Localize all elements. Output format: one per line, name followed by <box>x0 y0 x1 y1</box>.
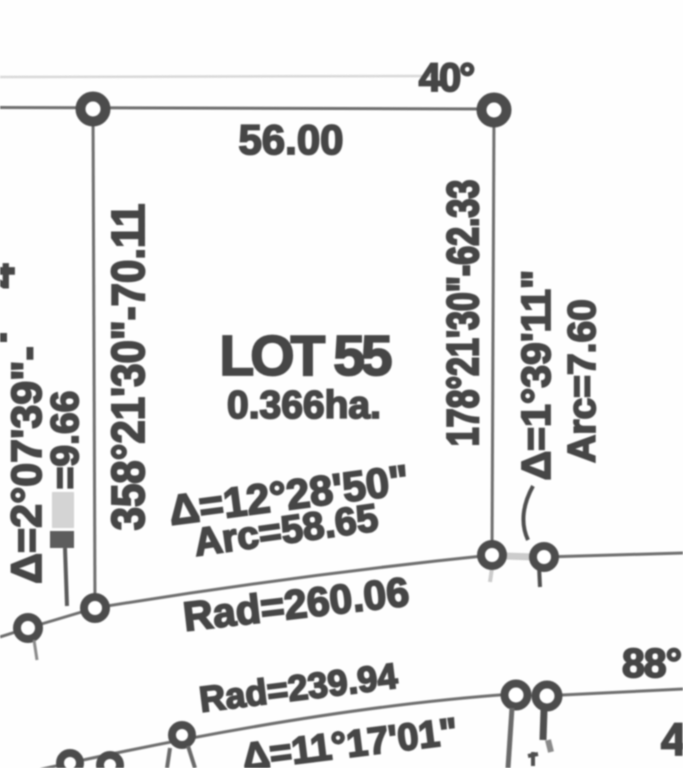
svg-text:Arc=7.60: Arc=7.60 <box>561 299 604 463</box>
svg-text:=9.66: =9.66 <box>44 391 87 490</box>
svg-text:88°: 88° <box>622 640 681 686</box>
svg-text:4: 4 <box>661 714 683 765</box>
svg-text:Δ=11°17'01": Δ=11°17'01" <box>240 711 460 768</box>
svg-text:178°21'30"-62.33: 178°21'30"-62.33 <box>439 180 489 446</box>
svg-text:LOT 55: LOT 55 <box>219 324 392 388</box>
svg-text:4: 4 <box>0 263 24 288</box>
svg-text:56.00: 56.00 <box>238 116 343 163</box>
svg-text:358°21'30"-70.11: 358°21'30"-70.11 <box>103 204 154 531</box>
svg-text:0.366ha.: 0.366ha. <box>227 384 381 427</box>
svg-text:40°: 40° <box>419 56 474 100</box>
svg-text:Δ=1°39'11": Δ=1°39'11" <box>513 270 559 481</box>
